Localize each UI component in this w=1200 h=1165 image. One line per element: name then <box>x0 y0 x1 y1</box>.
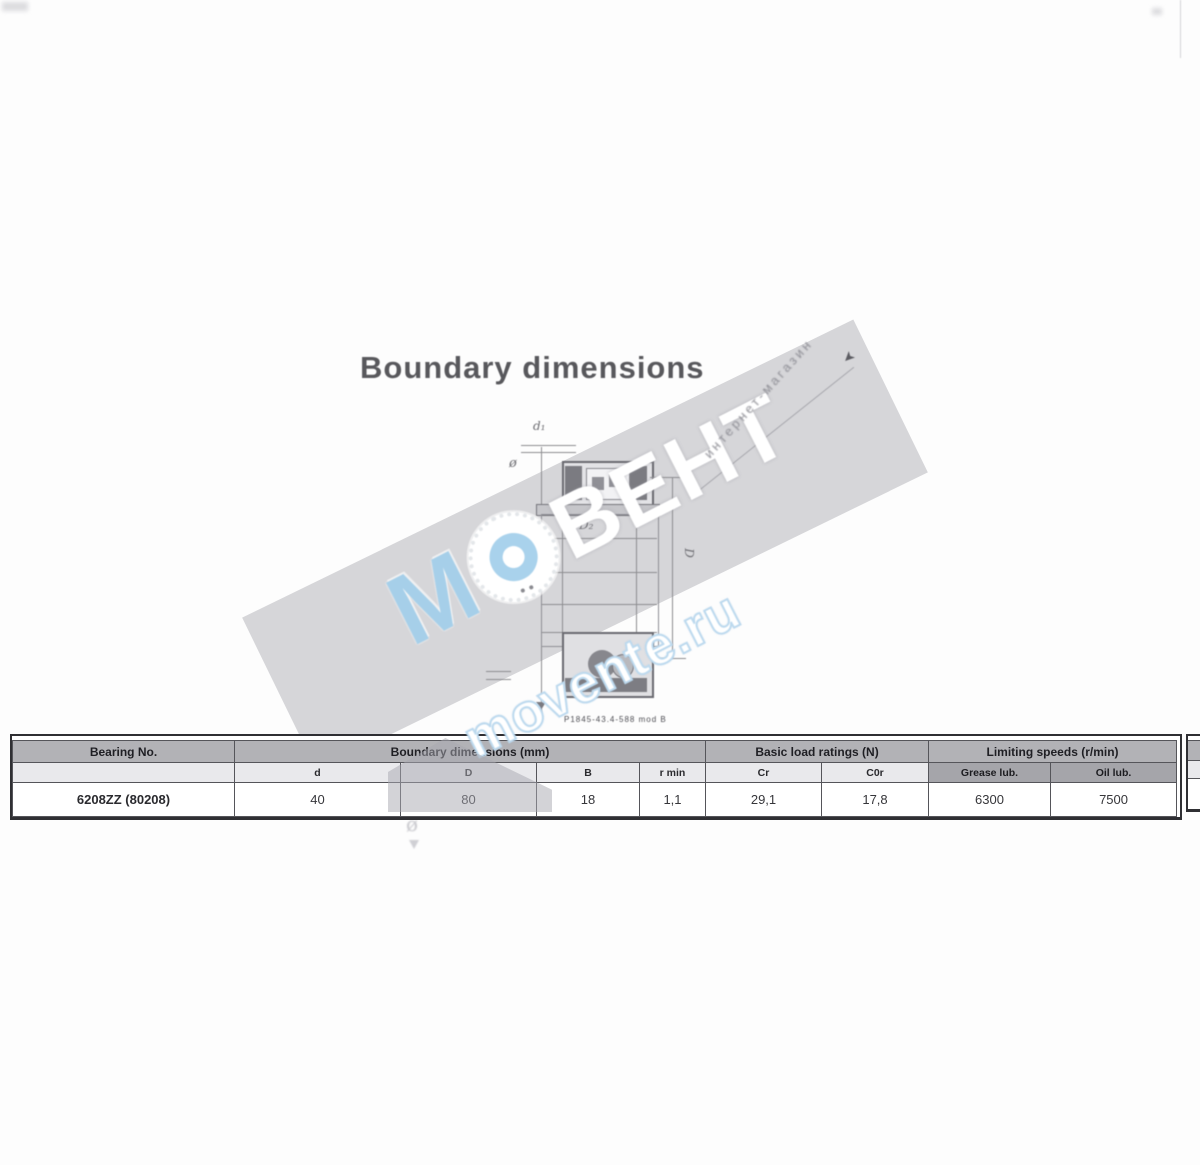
subheader-B: B <box>537 763 640 783</box>
bearing-ring-inner <box>482 525 547 590</box>
cell-cr: 29,1 <box>706 783 822 817</box>
dim-tick-top1 <box>521 445 576 446</box>
scan-smudge-topleft <box>2 2 28 11</box>
scan-line-right <box>1180 0 1181 58</box>
body-hline3 <box>541 604 657 605</box>
header-bearing-no: Bearing No. <box>13 741 235 763</box>
dim-label-d1: d₁ <box>533 419 546 433</box>
clipped-table-header <box>1188 740 1200 761</box>
cell-oil: 7500 <box>1051 783 1177 817</box>
header-limiting-speeds: Limiting speeds (r/min) <box>929 741 1177 763</box>
subheader-blank <box>13 763 235 783</box>
subheader-grease: Grease lub. <box>929 763 1051 783</box>
cell-d: 40 <box>235 783 401 817</box>
header-load-ratings: Basic load ratings (N) <box>706 741 929 763</box>
tick-bottom-left2 <box>486 679 511 680</box>
dim-label-D: D <box>682 548 696 558</box>
page-title: Boundary dimensions <box>360 350 705 386</box>
table-row: 6208ZZ (80208) 40 80 18 1,1 29,1 17,8 63… <box>13 783 1177 817</box>
subheader-d: d <box>235 763 401 783</box>
diameter-symbol-top: ø <box>509 456 517 471</box>
catalog-page: Boundary dimensions d₁ ø D₂ D <box>0 0 1200 1165</box>
faint-arrow-below-table <box>409 840 419 849</box>
scan-smudge-topright <box>1152 8 1162 15</box>
dim-tick-top2 <box>521 452 576 453</box>
clipped-table-fragment <box>1186 734 1200 812</box>
subheader-oil: Oil lub. <box>1051 763 1177 783</box>
subheader-c0r: C0r <box>822 763 929 783</box>
cell-r: 1,1 <box>640 783 706 817</box>
bearing-ring-dots <box>520 588 525 593</box>
tick-bottom-left1 <box>486 671 511 672</box>
cell-grease: 6300 <box>929 783 1051 817</box>
subheader-cr: Cr <box>706 763 822 783</box>
cell-designation: 6208ZZ (80208) <box>13 783 235 817</box>
clipped-table-subheader <box>1188 761 1200 779</box>
subheader-r: r min <box>640 763 706 783</box>
bearing-table: Bearing No. Boundary dimensions (mm) Bas… <box>12 740 1177 817</box>
cell-c0r: 17,8 <box>822 783 929 817</box>
bearing-table-wrapper: Bearing No. Boundary dimensions (mm) Bas… <box>10 734 1182 820</box>
